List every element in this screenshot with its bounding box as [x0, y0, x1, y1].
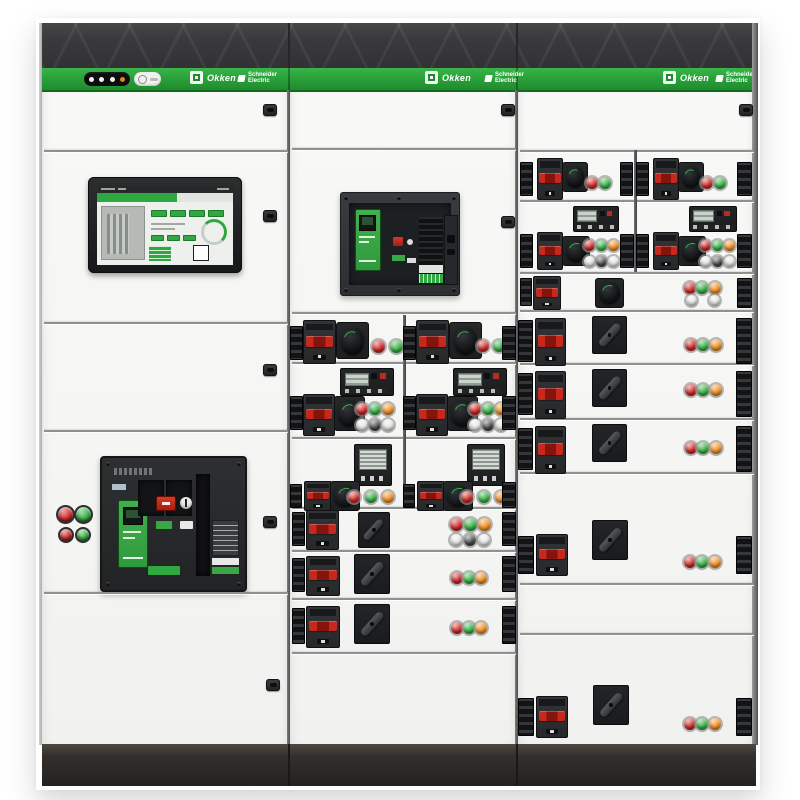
- hmi-info-panel: [149, 246, 171, 261]
- indicator-light-green: [712, 240, 723, 251]
- mccb-breaker[interactable]: [536, 534, 568, 576]
- meter-lcd: [345, 373, 369, 386]
- indicator-light-green: [478, 491, 490, 503]
- rotary-handle[interactable]: [354, 604, 390, 644]
- drawer-connector-block: [520, 162, 533, 196]
- breaker-label-green: [419, 274, 443, 283]
- door-seam: [520, 583, 754, 585]
- hmi-button[interactable]: [183, 235, 196, 241]
- rotary-switch-round[interactable]: [449, 322, 482, 359]
- band-seam: [516, 23, 518, 68]
- power-meter: [467, 444, 505, 486]
- drawer-connector-block: [292, 608, 305, 644]
- indicator-light-dark: [596, 256, 607, 267]
- meter-button-dark: [717, 211, 723, 216]
- hmi-title-text: [101, 188, 115, 190]
- meter-button-red: [493, 373, 499, 379]
- meter-button-strip: [361, 476, 384, 481]
- mccb-breaker[interactable]: [537, 158, 563, 200]
- breaker-recess: [349, 203, 451, 285]
- breaker-red-handle: [539, 549, 565, 559]
- schneider-logo-right: Schneider Electric: [716, 72, 755, 84]
- screw-icon: [106, 582, 110, 586]
- meter-lcd: [458, 373, 482, 386]
- mccb-breaker[interactable]: [303, 320, 336, 364]
- indicator-light-green: [463, 622, 475, 634]
- breaker-red-handle: [309, 524, 336, 534]
- breaker-dot: [549, 410, 552, 413]
- breaker-top: [540, 235, 560, 241]
- door-seam: [44, 150, 288, 152]
- door-lock[interactable]: [501, 104, 515, 116]
- indicator-light-green: [696, 718, 708, 730]
- drawer-connector-block: [290, 396, 303, 430]
- breaker-red-handle: [539, 711, 565, 721]
- rotary-switch-round[interactable]: [336, 322, 369, 359]
- breaker-dot: [550, 568, 554, 571]
- mccb-breaker[interactable]: [537, 232, 563, 270]
- indicator-light-white: [608, 256, 619, 267]
- rotary-switch-round[interactable]: [562, 162, 588, 192]
- door-lock[interactable]: [266, 679, 280, 691]
- meter-button-strip: [345, 389, 390, 393]
- indicator-light-green: [697, 384, 709, 396]
- drawer-connector-block: [518, 536, 534, 574]
- hmi-button[interactable]: [167, 235, 180, 241]
- breaker-label-white: [419, 265, 443, 273]
- drawer-connector-block: [502, 556, 516, 592]
- hmi-title-text: [118, 188, 126, 190]
- drawer-connector-block: [518, 373, 533, 415]
- indicator-light-orange: [478, 518, 491, 531]
- screw-icon: [452, 196, 456, 200]
- breaker-top: [540, 161, 560, 167]
- mccb-breaker[interactable]: [535, 426, 566, 474]
- door-seam: [292, 312, 516, 314]
- indicator-light-red: [685, 442, 697, 454]
- door-lock[interactable]: [263, 104, 277, 116]
- door-lock[interactable]: [263, 210, 277, 222]
- breaker-top: [539, 537, 564, 543]
- pushbutton-red[interactable]: [60, 529, 72, 541]
- rating-stripe-green: [212, 567, 239, 574]
- drawer-connector-block: [736, 698, 752, 736]
- touchscreen-hmi[interactable]: [88, 177, 242, 273]
- door-seam: [292, 598, 516, 600]
- indicator-light-red: [451, 622, 463, 634]
- hmi-titlebar: [97, 185, 233, 193]
- breaker-top: [538, 430, 562, 437]
- door-seam: [520, 200, 754, 202]
- okken-logo-icon: [425, 71, 438, 84]
- on-pushbutton[interactable]: [407, 239, 413, 245]
- hmi-button[interactable]: [189, 210, 205, 217]
- indicator-light-red: [685, 384, 697, 396]
- rotary-handle[interactable]: [592, 520, 628, 560]
- drawer-connector-block: [502, 482, 516, 508]
- door-seam: [44, 322, 288, 324]
- mccb-breaker[interactable]: [303, 394, 335, 436]
- door-lock[interactable]: [739, 104, 753, 116]
- breaker-top: [307, 484, 329, 488]
- breaker-red-handle: [420, 492, 443, 499]
- mccb-breaker[interactable]: [536, 696, 568, 738]
- screw-icon: [106, 462, 110, 466]
- meter-lcd: [577, 210, 597, 222]
- indicator-light-dark: [712, 256, 723, 267]
- indicator-light-orange: [382, 403, 394, 415]
- band-seam: [288, 23, 290, 68]
- digital-meter: [689, 206, 737, 232]
- breaker-top: [536, 279, 558, 284]
- indicator-light-white: [700, 256, 711, 267]
- rotary-handle[interactable]: [592, 424, 627, 462]
- indicator-light-red: [477, 340, 489, 352]
- drawer-connector-block: [290, 484, 302, 508]
- breaker-red-handle: [419, 336, 446, 347]
- schneider-logo-icon: [484, 75, 492, 82]
- breaker-dot: [429, 505, 432, 507]
- screw-icon: [397, 196, 401, 200]
- indicator-light-red: [684, 556, 696, 568]
- breaker-top: [656, 235, 676, 241]
- indicator-light-white: [709, 295, 720, 306]
- indicator-light-orange: [608, 240, 619, 251]
- meter-lcd: [693, 210, 714, 222]
- indicator-light-red: [584, 240, 595, 251]
- meter-button-strip: [474, 476, 497, 481]
- door-seam: [44, 430, 288, 432]
- breaker-dot: [318, 355, 322, 358]
- air-circuit-breaker: [100, 456, 247, 592]
- drawer-connector-block: [502, 512, 516, 546]
- indicator-light-red: [469, 403, 481, 415]
- indicator-light-green: [369, 403, 381, 415]
- indicator-light-green: [463, 572, 475, 584]
- breaker-top: [419, 397, 444, 403]
- breaker-red-handle: [655, 246, 676, 255]
- pill-led-white: [110, 77, 115, 82]
- meter-button-strip: [458, 389, 503, 393]
- door-seam: [292, 550, 516, 552]
- drawer-connector-block: [502, 326, 516, 360]
- indicator-light-red: [684, 282, 696, 294]
- off-pushbutton[interactable]: [393, 237, 403, 246]
- withdrawable-breaker-mtz: [340, 192, 460, 296]
- slot-indicator-icon: [150, 78, 158, 81]
- mccb-breaker[interactable]: [416, 320, 449, 364]
- drawer-connector-block: [737, 278, 752, 308]
- pushbutton-green[interactable]: [77, 529, 89, 541]
- indicator-light-green: [365, 491, 377, 503]
- breaker-dot: [665, 263, 668, 266]
- hmi-header-bar-light: [177, 193, 233, 202]
- indicator-light-red: [684, 718, 696, 730]
- okken-brand-right: Okken: [663, 71, 709, 84]
- okken-wordmark: Okken: [442, 73, 471, 83]
- hmi-gauge-icon: [201, 219, 227, 245]
- mccb-breaker[interactable]: [653, 232, 679, 270]
- schneider-line2: Electric: [726, 78, 748, 84]
- screw-icon: [344, 288, 348, 292]
- indicator-light-red: [700, 240, 711, 251]
- mccb-breaker[interactable]: [306, 606, 340, 648]
- breaker-top: [420, 484, 442, 488]
- drawer-connector-block: [403, 326, 416, 360]
- status-led-strip: [84, 72, 130, 86]
- hmi-header-bar: [97, 193, 177, 202]
- mccb-breaker[interactable]: [306, 510, 339, 550]
- drawer-connector-block: [736, 318, 752, 364]
- plinth-seam: [516, 744, 518, 786]
- breaker-top: [310, 559, 337, 565]
- meter-button-dark: [484, 373, 490, 379]
- control-pill[interactable]: [134, 72, 161, 86]
- indicator-light-white: [469, 419, 481, 431]
- micrologic-label: [123, 557, 143, 559]
- hmi-brand-text: [217, 188, 229, 190]
- breaker-dot: [545, 303, 548, 305]
- indicator-light-white: [382, 419, 394, 431]
- drawer-connector-block: [636, 162, 649, 196]
- drawer-connector-block: [292, 558, 305, 592]
- screw-icon: [344, 196, 348, 200]
- indicator-light-green: [390, 340, 403, 353]
- mccb-breaker[interactable]: [416, 394, 448, 436]
- breaker-red-handle: [307, 492, 330, 499]
- breaker-red-handle: [538, 388, 564, 400]
- hmi-button[interactable]: [151, 235, 164, 241]
- drawer-connector-block: [736, 426, 752, 472]
- indicator-light-orange: [709, 282, 721, 294]
- breaker-top: [306, 397, 331, 403]
- door-seam: [520, 310, 754, 312]
- breaker-nameplate: [112, 468, 154, 475]
- breaker-dot: [549, 263, 552, 266]
- switchboard-photo: Okken Schneider Electric Okken Schneider…: [0, 0, 800, 800]
- indicator-light-dark: [464, 534, 476, 546]
- indicator-light-white: [584, 256, 595, 267]
- rotary-handle[interactable]: [354, 554, 390, 594]
- drawer-connector-block: [403, 396, 416, 430]
- drawer-connector-block: [737, 234, 752, 268]
- breaker-red-handle: [538, 335, 564, 347]
- indicator-light-dark: [369, 419, 381, 431]
- pill-led-white: [89, 77, 94, 82]
- drawer-connector-block: [502, 606, 516, 644]
- indicator-light-orange: [710, 442, 722, 454]
- drawer-connector-block: [736, 371, 752, 417]
- pill-led-amber: [120, 77, 125, 82]
- hmi-text-line: [151, 228, 175, 230]
- hmi-button[interactable]: [170, 210, 186, 217]
- door-seam: [520, 633, 754, 635]
- drawer-connector-block: [518, 698, 534, 736]
- breaker-dot: [550, 730, 554, 733]
- door-lock[interactable]: [263, 364, 277, 376]
- meter-lcd: [359, 449, 386, 470]
- digital-meter: [573, 206, 619, 232]
- meter-button-dark: [600, 211, 605, 216]
- mccb-breaker[interactable]: [304, 481, 332, 511]
- hmi-screen[interactable]: [97, 185, 233, 265]
- breaker-dot: [430, 428, 434, 431]
- mccb-breaker[interactable]: [653, 158, 679, 200]
- micrologic-control-unit[interactable]: [355, 209, 381, 271]
- schneider-line2: Electric: [495, 78, 517, 84]
- indicator-light-white: [356, 419, 368, 431]
- plinth-seam: [288, 744, 290, 786]
- drawer-connector-block: [502, 396, 516, 430]
- cabinet-right-edge: [752, 23, 758, 745]
- qr-code-icon: [193, 245, 209, 261]
- breaker-dot: [665, 192, 668, 195]
- door-lock[interactable]: [263, 516, 277, 528]
- indicator-light-orange: [710, 339, 722, 351]
- breaker-dot: [549, 192, 552, 195]
- breaker-red-handle: [309, 570, 337, 580]
- rotary-handle[interactable]: [593, 685, 629, 725]
- door-seam: [292, 148, 516, 150]
- schneider-logo-icon: [237, 75, 245, 82]
- indicator-light-green: [482, 403, 494, 415]
- breaker-top: [309, 513, 335, 519]
- indicator-light-red: [348, 491, 360, 503]
- drawer-connector-block: [736, 536, 752, 574]
- breaker-red-handle: [306, 409, 332, 419]
- indicator-light-green: [596, 240, 607, 251]
- door-lock[interactable]: [501, 216, 515, 228]
- screw-icon: [397, 288, 401, 292]
- breaker-dot: [321, 542, 325, 545]
- meter-button-red: [380, 373, 386, 379]
- door-seam: [520, 272, 754, 274]
- micrologic-display: [359, 215, 376, 231]
- cabinet-left-edge: [39, 23, 42, 745]
- racking-panel: [444, 215, 458, 285]
- rating-stripe-white: [212, 558, 239, 565]
- breaker-top: [306, 324, 332, 331]
- status-flag-green: [156, 521, 172, 529]
- indicator-light-green: [599, 177, 611, 189]
- breaker-dot: [321, 640, 325, 643]
- drawer-connector-block: [520, 278, 532, 306]
- indicator-light-red: [372, 340, 385, 353]
- breaker-red-handle: [536, 288, 559, 296]
- breaker-red-handle: [539, 246, 560, 255]
- indicator-light-red: [701, 177, 713, 189]
- mccb-breaker[interactable]: [535, 371, 566, 419]
- indicator-light-green: [714, 177, 726, 189]
- meter-lcd: [472, 449, 499, 470]
- okken-logo-icon: [663, 71, 676, 84]
- breaker-dot: [321, 588, 325, 591]
- breaker-red-handle: [538, 443, 564, 455]
- okken-brand-left: Okken: [190, 71, 236, 84]
- indicator-light-orange: [475, 572, 487, 584]
- stripe-seam: [288, 68, 290, 90]
- drawer-connector-block: [518, 428, 533, 470]
- schneider-logo-left: Schneider Electric: [238, 72, 277, 84]
- okken-wordmark: Okken: [207, 73, 236, 83]
- status-flag-green: [392, 255, 405, 261]
- okken-wordmark: Okken: [680, 73, 709, 83]
- schneider-logo-icon: [715, 75, 723, 82]
- indicator-light-red: [461, 491, 473, 503]
- rotary-switch-round[interactable]: [595, 278, 624, 308]
- on-pushbutton[interactable]: [180, 497, 192, 509]
- mccb-breaker[interactable]: [533, 276, 561, 310]
- indicator-light-white: [450, 534, 462, 546]
- meter-button-red: [607, 211, 612, 216]
- drawer-connector-block: [518, 320, 533, 362]
- meter-button-red: [724, 211, 730, 216]
- drawer-connector-block: [520, 234, 533, 268]
- breaker-brand-label: [148, 566, 180, 575]
- rotary-switch-round[interactable]: [678, 162, 704, 192]
- schneider-logo-middle: Schneider Electric: [485, 72, 524, 84]
- indicator-light-orange: [710, 384, 722, 396]
- breaker-top: [656, 161, 676, 167]
- pill-led-white: [99, 77, 104, 82]
- meter-button-strip: [577, 225, 615, 229]
- indicator-light-green: [697, 339, 709, 351]
- racking-hole: [447, 235, 455, 243]
- digital-meter: [453, 368, 507, 396]
- screw-icon: [237, 582, 241, 586]
- breaker-dot: [316, 505, 319, 507]
- drawer-connector-block: [636, 234, 649, 268]
- hmi-button[interactable]: [151, 210, 167, 217]
- off-pushbutton[interactable]: [156, 496, 176, 511]
- hmi-button[interactable]: [208, 210, 224, 217]
- drawer-connector-block: [403, 484, 415, 508]
- meter-button-dark: [371, 373, 377, 379]
- indicator-light-orange: [724, 240, 735, 251]
- breaker-red-handle: [539, 173, 560, 183]
- indicator-light-white: [724, 256, 735, 267]
- status-flag-white: [180, 521, 193, 529]
- indicator-light-orange: [382, 491, 394, 503]
- pushbutton-red[interactable]: [58, 507, 73, 522]
- drawer-connector-block: [620, 162, 633, 196]
- breaker-dot: [317, 428, 321, 431]
- meter-button-strip: [693, 225, 733, 229]
- rotary-handle[interactable]: [592, 369, 627, 407]
- pushbutton-green[interactable]: [76, 507, 91, 522]
- rotary-handle[interactable]: [358, 512, 390, 548]
- rotary-handle[interactable]: [592, 316, 627, 354]
- breaker-top: [538, 375, 562, 382]
- mccb-breaker[interactable]: [535, 318, 566, 366]
- breaker-top: [538, 322, 562, 329]
- indicator-light-red: [586, 177, 598, 189]
- okken-brand-middle: Okken: [425, 71, 471, 84]
- indicator-light-green: [697, 442, 709, 454]
- breaker-dot: [549, 357, 552, 360]
- breaker-red-handle: [309, 621, 337, 631]
- breaker-top: [419, 324, 445, 331]
- drawer-connector-block: [737, 162, 752, 196]
- screw-icon: [237, 462, 241, 466]
- indicator-light-red: [450, 518, 463, 531]
- mccb-breaker[interactable]: [306, 556, 340, 596]
- drawer-connector-block: [292, 512, 305, 546]
- mccb-breaker[interactable]: [417, 481, 445, 511]
- door-seam: [292, 652, 516, 654]
- schneider-line2: Electric: [248, 78, 270, 84]
- breaker-red-handle: [419, 409, 445, 419]
